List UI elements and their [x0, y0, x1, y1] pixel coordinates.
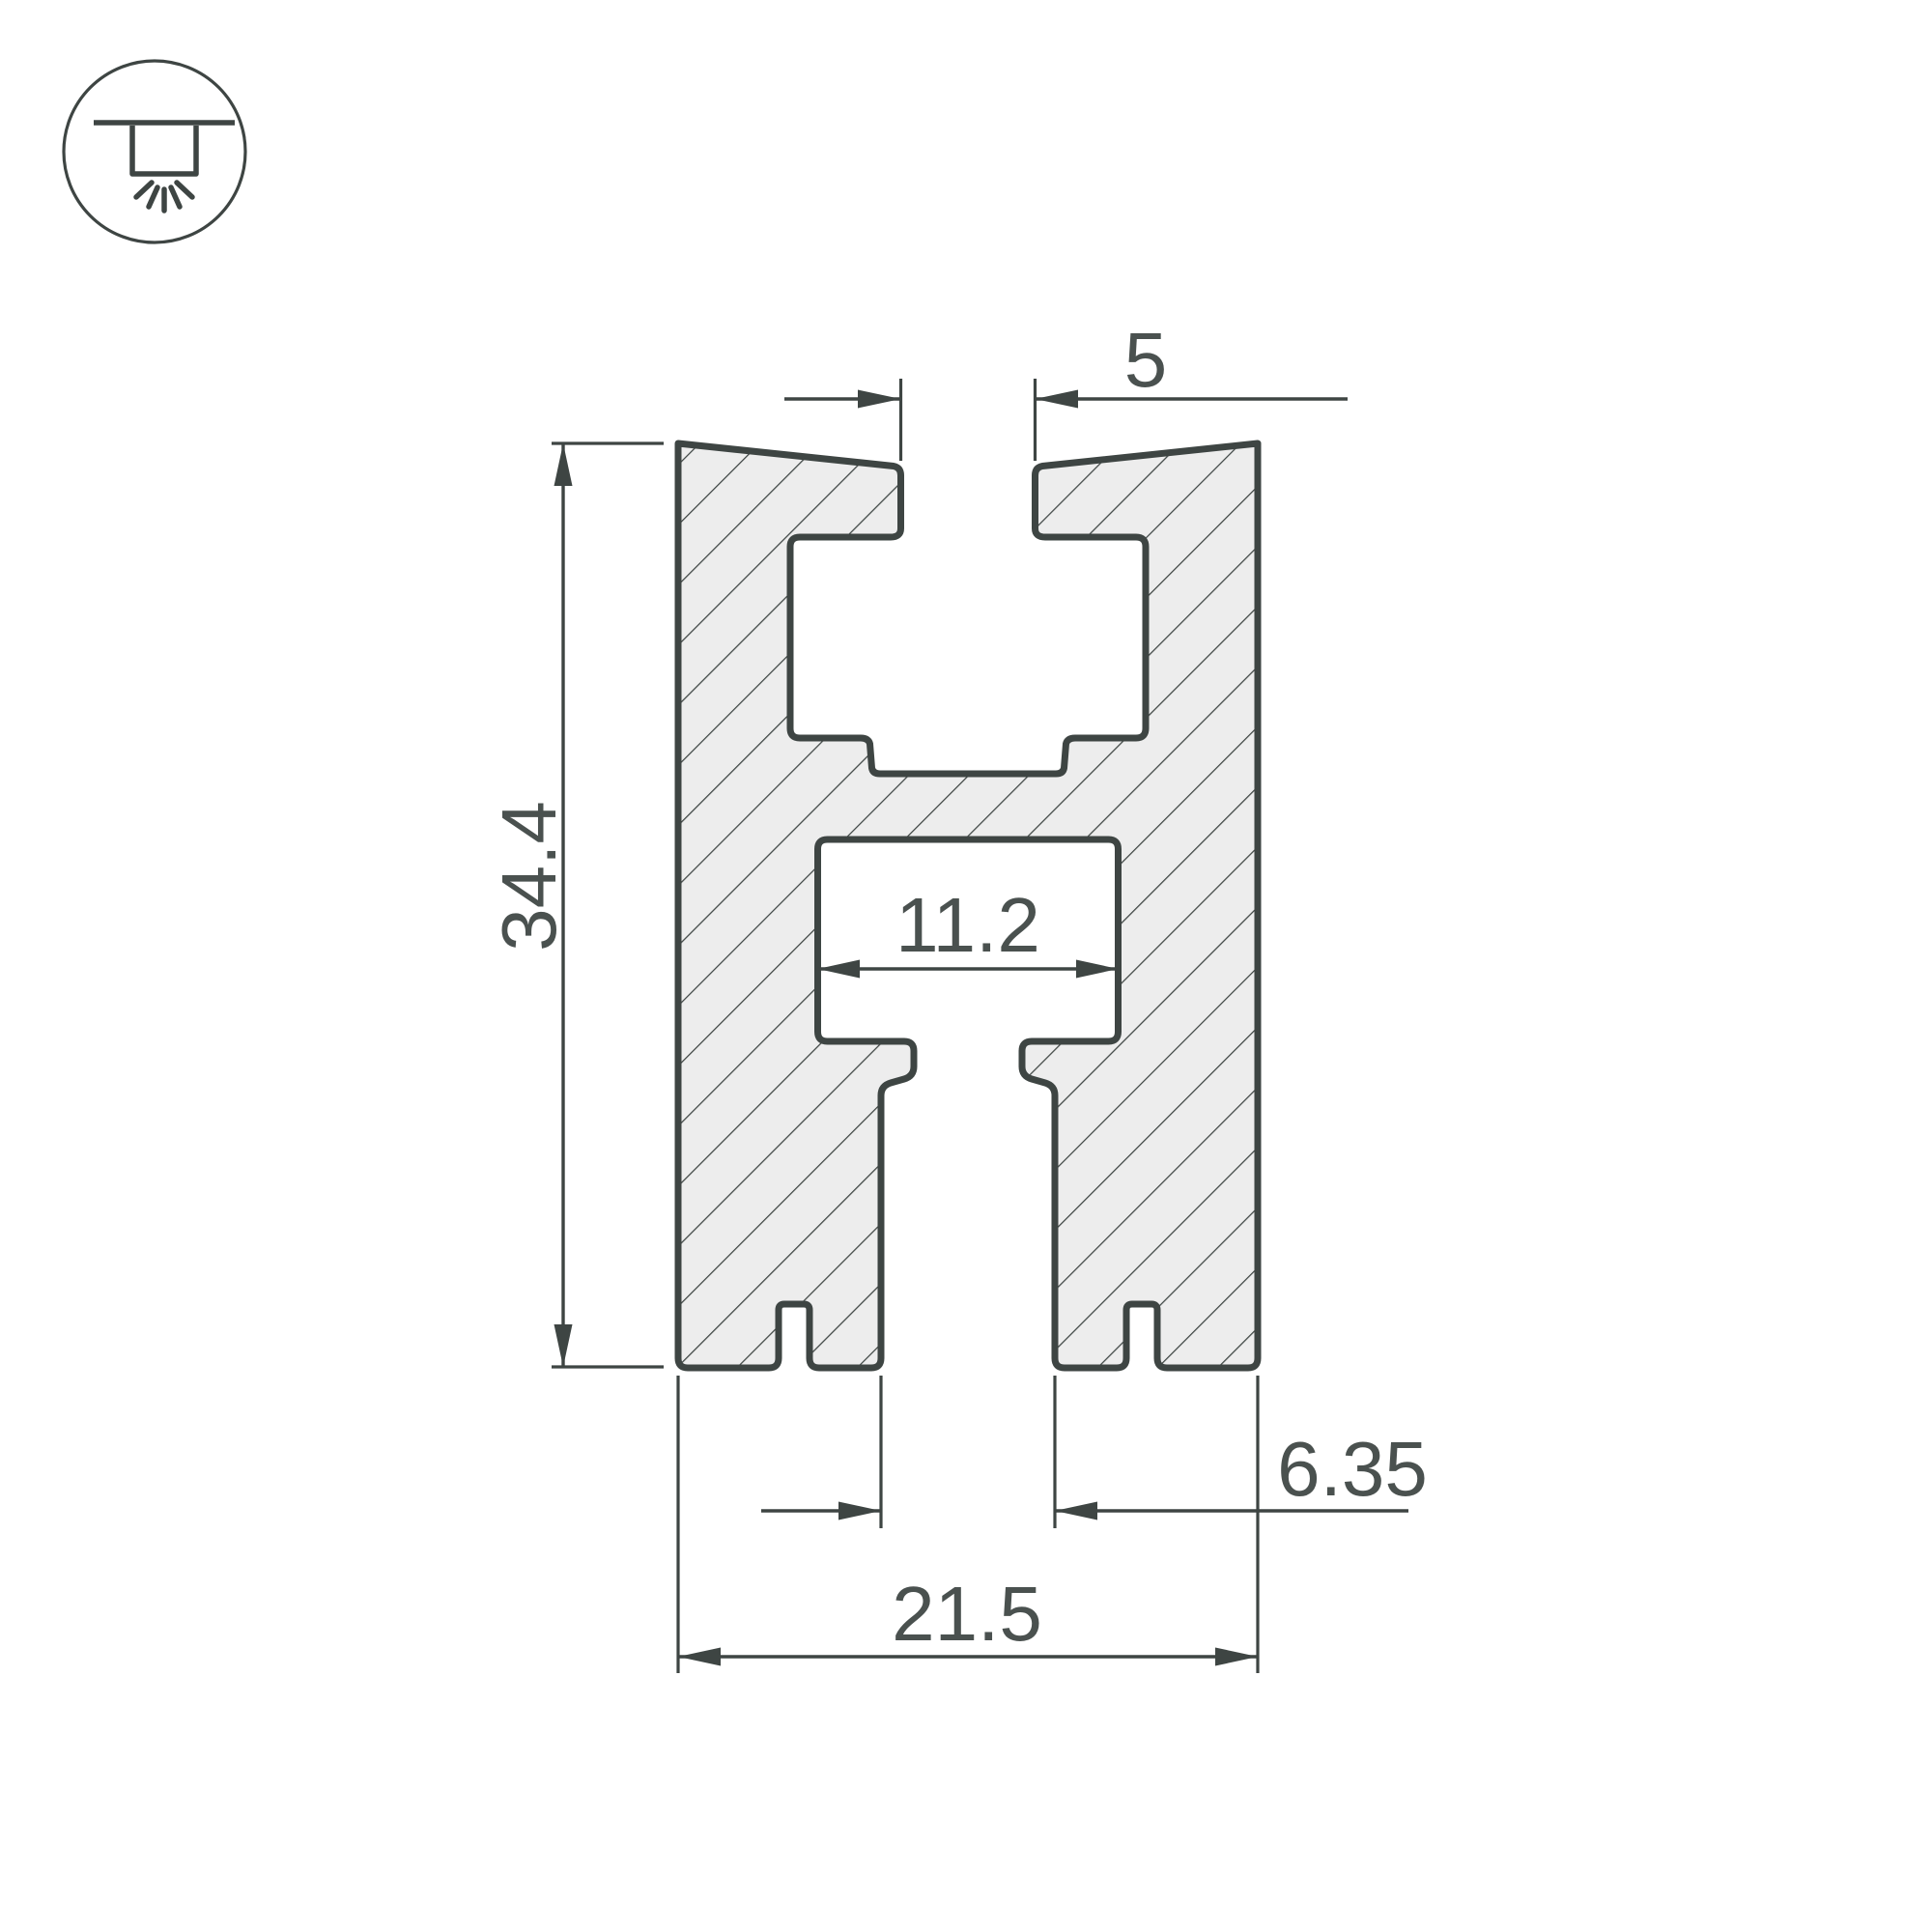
dim-label-inner-cavity: 11.2 [895, 882, 1040, 968]
icon-circle [64, 61, 245, 242]
arrowhead-left [1036, 390, 1079, 409]
arrowhead-right [838, 1502, 881, 1520]
recessed-light-icon [64, 61, 245, 242]
dim-bottom-slot-width: 6.35 [761, 1376, 1428, 1528]
dim-label-top-slot: 5 [1124, 317, 1168, 403]
dim-label-overall-width: 21.5 [892, 1571, 1042, 1657]
dim-overall-width: 21.5 [678, 1376, 1258, 1673]
dim-overall-height: 34.4 [486, 443, 664, 1367]
icon-fixture-box [132, 126, 196, 174]
arrowhead-right [1076, 960, 1119, 979]
arrowhead-right [858, 390, 901, 409]
profile-drawing-svg: 5 34.4 11.2 6.35 21.5 [0, 0, 1932, 1932]
arrowhead-up [554, 443, 573, 486]
icon-light-rays [136, 183, 192, 211]
arrowhead-down [554, 1324, 573, 1367]
arrowhead-left [678, 1648, 721, 1666]
dim-inner-cavity-width: 11.2 [818, 882, 1119, 979]
dim-top-slot-width: 5 [784, 317, 1348, 461]
arrowhead-left [1055, 1502, 1097, 1520]
dim-label-overall-height: 34.4 [486, 801, 572, 952]
dim-label-bottom-slot: 6.35 [1277, 1426, 1428, 1512]
technical-drawing-canvas: 5 34.4 11.2 6.35 21.5 [0, 0, 1932, 1932]
arrowhead-right [1215, 1648, 1258, 1666]
arrowhead-left [818, 960, 861, 979]
